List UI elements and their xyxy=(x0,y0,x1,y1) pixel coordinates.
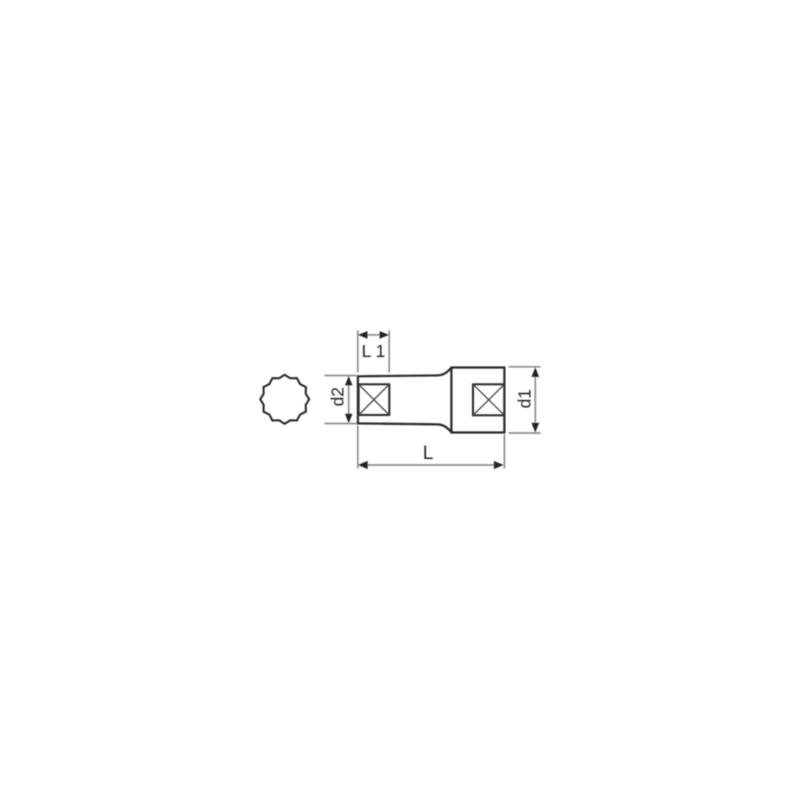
svg-text:L 1: L 1 xyxy=(362,341,386,361)
svg-text:d2: d2 xyxy=(328,387,348,406)
svg-text:d1: d1 xyxy=(514,389,534,408)
svg-text:L: L xyxy=(423,443,434,464)
